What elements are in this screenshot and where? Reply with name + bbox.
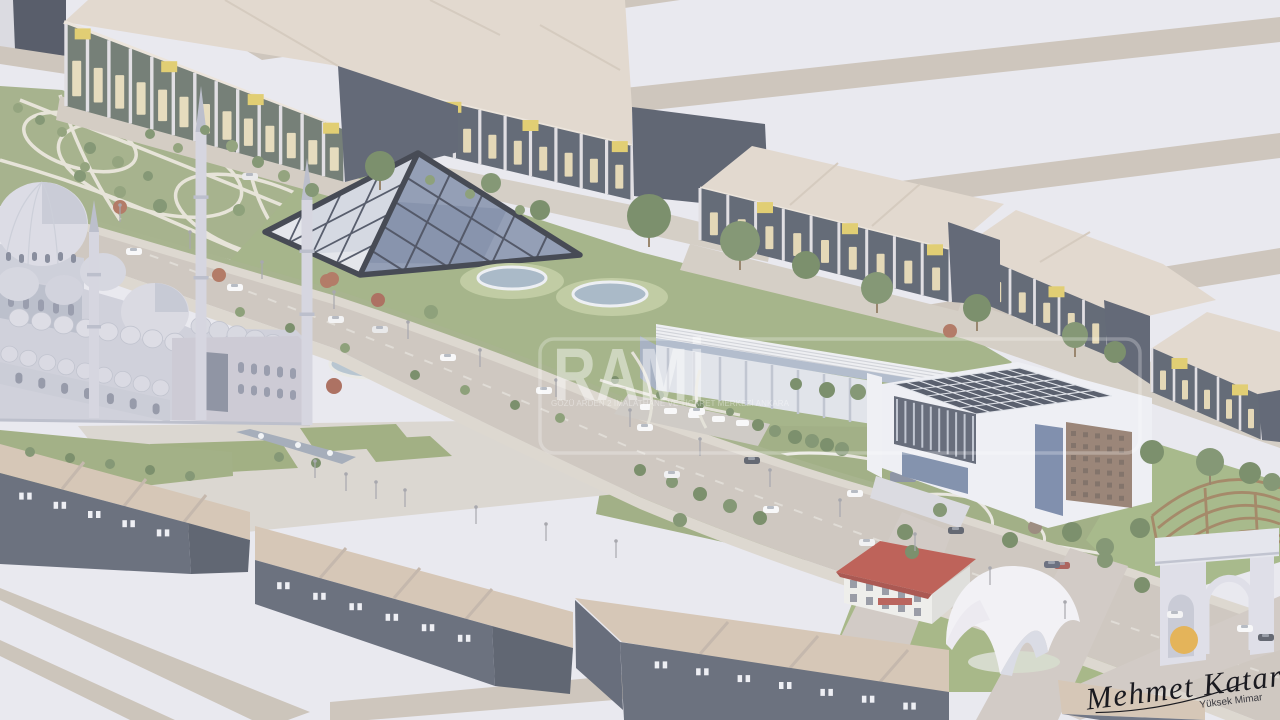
svg-text:GÖZÜ ARDEN 2 İMALATHANE VE TİC: GÖZÜ ARDEN 2 İMALATHANE VE TİCARET MERKE… <box>551 399 790 408</box>
